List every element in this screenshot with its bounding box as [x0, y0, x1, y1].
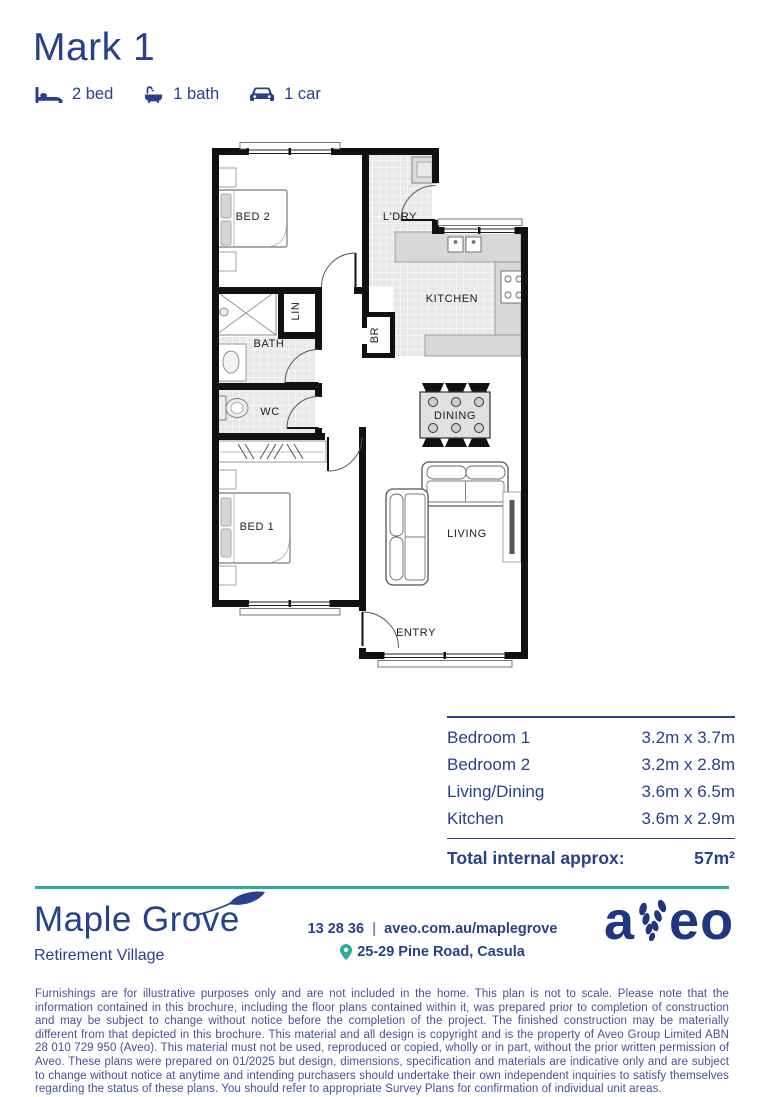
- feature-baths: 1 bath: [143, 85, 219, 104]
- footer-divider: [35, 886, 729, 889]
- location-pin-icon: [340, 944, 352, 960]
- room-label-bath: BATH: [254, 338, 285, 350]
- wardrobe: [218, 441, 326, 462]
- feature-row: 2 bed 1 bath 1 car: [35, 85, 321, 104]
- contact-block: 13 28 36 | aveo.com.au/maplegrove 25-29 …: [300, 921, 565, 960]
- room-label-bed2: BED 2: [236, 211, 271, 223]
- dim-label: Bedroom 2: [447, 755, 530, 775]
- table-row: Bedroom 1 3.2m x 3.7m: [447, 725, 735, 752]
- total-label: Total internal approx:: [447, 848, 625, 869]
- dim-value: 3.2m x 2.8m: [641, 755, 735, 775]
- page: { "header": { "title": "Mark 1", "featur…: [0, 0, 764, 1080]
- dim-label: Kitchen: [447, 809, 504, 829]
- brand-text-right: eo: [669, 900, 734, 942]
- contact-line: 13 28 36 | aveo.com.au/maplegrove: [300, 921, 565, 937]
- table-row: Bedroom 2 3.2m x 2.8m: [447, 752, 735, 779]
- car-icon: [249, 86, 275, 104]
- bath-icon: [143, 85, 164, 104]
- dim-value: 3.6m x 2.9m: [641, 809, 735, 829]
- dimensions-table: Bedroom 1 3.2m x 3.7m Bedroom 2 3.2m x 2…: [447, 716, 735, 869]
- vanity: [216, 344, 246, 381]
- disclaimer-text: Furnishings are for illustrative purpose…: [35, 988, 729, 1097]
- total-value: 57m²: [694, 848, 735, 869]
- table-row: Kitchen 3.6m x 2.9m: [447, 805, 735, 832]
- dim-label: Bedroom 1: [447, 728, 530, 748]
- shower: [216, 291, 276, 335]
- room-label-laundry: L'DRY: [383, 211, 417, 223]
- contact-separator: |: [368, 921, 380, 937]
- brand-logo: a eo: [604, 899, 734, 942]
- room-label-bed1: BED 1: [240, 521, 275, 533]
- feature-cars: 1 car: [249, 85, 321, 104]
- leaf-icon: [191, 890, 269, 918]
- page-title: Mark 1: [33, 26, 155, 70]
- dim-label: Living/Dining: [447, 782, 544, 802]
- phone-number: 13 28 36: [308, 921, 364, 937]
- tv-unit: [503, 492, 521, 562]
- village-logo: Maple Grove Retirement Village: [34, 902, 240, 965]
- room-label-living: LIVING: [447, 528, 487, 540]
- village-subtitle: Retirement Village: [34, 947, 240, 965]
- feature-beds: 2 bed: [35, 85, 113, 104]
- room-label-linen: LIN: [290, 302, 302, 321]
- armchair: [386, 489, 428, 585]
- website-link[interactable]: aveo.com.au/maplegrove: [384, 921, 557, 937]
- feature-baths-label: 1 bath: [173, 85, 219, 104]
- brand-text-left: a: [604, 900, 635, 942]
- room-label-broom: BR: [369, 327, 381, 343]
- address-text: 25-29 Pine Road, Casula: [357, 944, 525, 960]
- room-label-wc: WC: [260, 406, 280, 418]
- floor-plan: BED 2 L'DRY KITCHEN LIN BR BATH WC DININ…: [190, 125, 550, 680]
- sofa: [422, 462, 508, 506]
- brand-leaf-v-icon: [636, 899, 668, 941]
- room-label-entry: ENTRY: [396, 627, 436, 639]
- dim-value: 3.2m x 3.7m: [641, 728, 735, 748]
- table-row: Living/Dining 3.6m x 6.5m: [447, 779, 735, 806]
- bed-icon: [35, 86, 63, 104]
- feature-beds-label: 2 bed: [72, 85, 113, 104]
- dim-value: 3.6m x 6.5m: [641, 782, 735, 802]
- address-line: 25-29 Pine Road, Casula: [300, 944, 565, 960]
- room-label-kitchen: KITCHEN: [426, 293, 478, 305]
- feature-cars-label: 1 car: [284, 85, 321, 104]
- total-row: Total internal approx: 57m²: [447, 839, 735, 869]
- room-label-dining: DINING: [434, 410, 476, 422]
